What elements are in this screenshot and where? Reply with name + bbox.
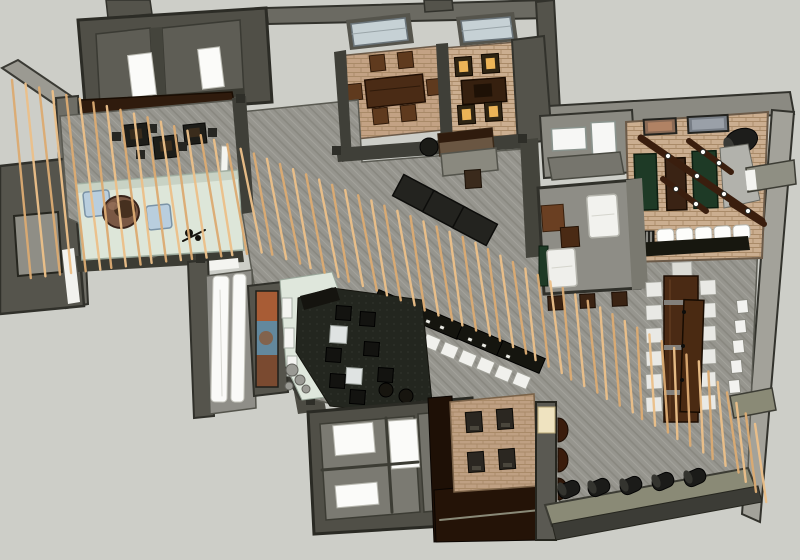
beam-light	[694, 173, 699, 178]
white-door	[198, 47, 225, 89]
window-slat	[730, 359, 742, 373]
lounge-chair	[326, 347, 342, 362]
shape	[681, 344, 685, 348]
lounge-chair	[378, 367, 394, 382]
shape	[332, 146, 341, 155]
dining-chair	[372, 107, 389, 124]
shape	[189, 127, 201, 137]
lounge-chair	[330, 373, 346, 388]
beam-light	[673, 186, 678, 191]
pouf	[399, 389, 413, 403]
shape	[178, 142, 187, 151]
floorplan-svg	[0, 0, 800, 560]
shape	[195, 235, 201, 241]
window-slat	[728, 379, 740, 393]
beam-light	[716, 160, 721, 165]
white-door	[335, 482, 379, 508]
shape	[472, 466, 481, 470]
shape	[692, 118, 724, 130]
round-table	[420, 138, 438, 156]
dining-chair	[397, 51, 414, 68]
shape	[459, 61, 469, 73]
shape	[108, 202, 118, 210]
white-chair	[646, 351, 663, 367]
beam-light	[693, 201, 698, 206]
white-door	[128, 53, 157, 98]
shape	[518, 134, 527, 143]
floorplan-render	[0, 0, 800, 560]
shape	[486, 58, 496, 70]
shape	[256, 355, 278, 387]
shape	[680, 378, 684, 382]
stone	[295, 375, 305, 385]
shape	[470, 426, 479, 430]
white-chair	[646, 328, 663, 344]
bench	[284, 328, 294, 348]
shape	[208, 128, 217, 137]
stool	[612, 292, 628, 307]
shape	[259, 331, 273, 345]
stone	[286, 364, 298, 376]
scene-layers	[0, 0, 800, 560]
beam-light	[700, 149, 705, 154]
stone	[302, 385, 310, 393]
lounge-chair	[364, 341, 380, 356]
shape	[464, 169, 481, 188]
beam-light	[745, 208, 750, 213]
lounge-chair	[336, 305, 352, 320]
window-slat	[736, 299, 748, 313]
lounge-table	[345, 367, 362, 384]
white-chair	[700, 280, 717, 296]
shape	[112, 132, 121, 141]
shape	[489, 106, 499, 118]
dining-chair	[400, 104, 417, 121]
white-door	[333, 422, 375, 455]
side-table	[560, 226, 579, 247]
window-slat	[734, 319, 746, 333]
window	[551, 127, 586, 151]
white-chair	[646, 282, 663, 298]
stone	[285, 382, 293, 390]
white-chair	[646, 305, 663, 321]
pouf	[379, 383, 393, 397]
art-mural	[256, 291, 278, 323]
skylight	[461, 17, 513, 42]
shape	[682, 310, 686, 314]
window-slat	[732, 339, 744, 353]
column-capital	[538, 407, 555, 433]
shape	[501, 423, 510, 427]
brick-floor	[450, 394, 538, 492]
lounge-table	[329, 325, 347, 343]
shape	[424, 0, 453, 12]
lounge-chair	[350, 389, 366, 404]
shape	[648, 121, 672, 131]
white-chair	[646, 374, 663, 390]
bench	[282, 298, 292, 318]
dining-chair	[346, 83, 363, 100]
shape	[474, 83, 493, 97]
shape	[745, 170, 757, 191]
beam-light	[721, 191, 726, 196]
shape	[462, 109, 472, 121]
light-panel	[231, 274, 246, 402]
stool	[548, 296, 564, 311]
shape	[196, 254, 205, 263]
shape	[236, 94, 245, 103]
shape	[503, 463, 512, 467]
dining-chair	[369, 54, 386, 71]
brick-alcove	[428, 394, 568, 542]
beam-light	[665, 153, 670, 158]
lounge-chair	[360, 311, 376, 326]
dining-room-b	[444, 42, 522, 142]
